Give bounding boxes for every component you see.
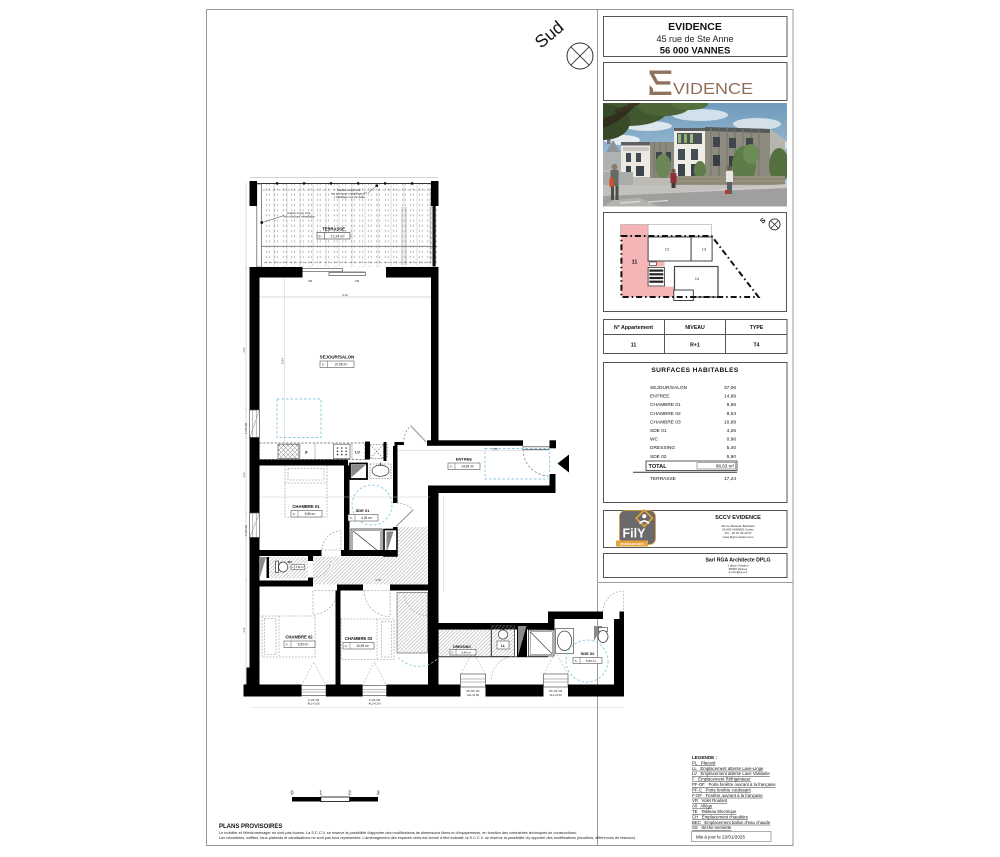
svg-text:11: 11 [632, 260, 638, 266]
svg-text:ALL=0,00: ALL=0,00 [550, 693, 562, 697]
svg-text:9,53 m²: 9,53 m² [298, 643, 309, 647]
svg-text:Les retombées, soffites, faux-: Les retombées, soffites, faux-plafonds e… [219, 836, 636, 840]
svg-text:2,95: 2,95 [242, 347, 246, 353]
svg-text:S :: S : [451, 651, 454, 655]
svg-text:TE Tableau Electrique: TE Tableau Electrique [692, 809, 737, 814]
svg-text:S :: S : [322, 363, 326, 367]
svg-text:1: 1 [319, 791, 322, 797]
svg-text:PL Placard: PL Placard [692, 760, 716, 765]
svg-text:N° Appartement: N° Appartement [614, 325, 653, 331]
svg-text:S :: S : [318, 234, 322, 238]
svg-text:FilY: FilY [623, 527, 647, 541]
svg-text:ALL=0,00: ALL=0,00 [467, 693, 479, 697]
svg-text:VIDENCE: VIDENCE [673, 81, 753, 98]
svg-text:a.ruze@rg-a.fr: a.ruze@rg-a.fr [729, 570, 748, 574]
svg-text:CHAMBRE 03: CHAMBRE 03 [650, 419, 681, 425]
svg-text:+ habillage nez de dalle: + habillage nez de dalle [333, 195, 365, 199]
svg-text:Mis à jour le 22/01/2025: Mis à jour le 22/01/2025 [696, 835, 745, 840]
svg-text:IMMOBILIER NEUF: IMMOBILIER NEUF [620, 542, 644, 546]
svg-text:S :: S : [291, 567, 294, 569]
svg-text:45 rue de Ste Anne: 45 rue de Ste Anne [656, 34, 733, 44]
svg-text:LV Emplacement attente Lave: LV Emplacement attente Lave Vaisselle [692, 771, 770, 776]
svg-text:56 000 VANNES: 56 000 VANNES [660, 46, 731, 57]
svg-text:5,90: 5,90 [727, 454, 737, 460]
svg-text:CHAMBRE 03: CHAMBRE 03 [345, 636, 373, 641]
svg-text:6,10: 6,10 [342, 293, 348, 297]
svg-text:37,06: 37,06 [724, 385, 736, 391]
svg-text:98,63 m²: 98,63 m² [716, 464, 735, 469]
svg-text:PF-C Porte fenêtre coulissan: PF-C Porte fenêtre coulissant [692, 787, 752, 792]
svg-text:14,99: 14,99 [724, 394, 736, 400]
svg-text:ENTREE: ENTREE [456, 457, 473, 462]
svg-text:LV: LV [355, 450, 360, 455]
svg-text:5,90 m²: 5,90 m² [586, 659, 596, 663]
svg-text:LL Emplacement attente Lave-: LL Emplacement attente Lave-Linge [692, 766, 764, 771]
svg-text:12: 12 [665, 247, 670, 252]
svg-text:9,53: 9,53 [727, 411, 737, 417]
svg-text:10,99 m²: 10,99 m² [356, 644, 369, 648]
svg-text:37,06 m²: 37,06 m² [335, 363, 348, 367]
svg-text:2: 2 [348, 791, 351, 797]
svg-text:S :: S : [293, 512, 297, 516]
svg-text:ALL=1,00: ALL=1,00 [368, 702, 380, 706]
svg-text:0,96: 0,96 [727, 437, 737, 443]
svg-text:3: 3 [376, 791, 379, 797]
svg-text:CHAMBRE 01: CHAMBRE 01 [292, 504, 320, 509]
svg-text:13: 13 [702, 247, 707, 252]
svg-text:S :: S : [575, 659, 579, 663]
svg-text:VR Volet Roulant: VR Volet Roulant [692, 798, 728, 803]
svg-text:9,56 m²: 9,56 m² [305, 512, 316, 516]
svg-text:WC: WC [288, 560, 293, 564]
svg-text:SS Sèche-serviette: SS Sèche-serviette [692, 825, 732, 830]
svg-text:17,24 m²: 17,24 m² [330, 234, 345, 238]
svg-text:SDE 01: SDE 01 [650, 428, 667, 434]
svg-text:11: 11 [631, 343, 637, 349]
svg-text:PF-OF Porte fenêtre ouvrant: PF-OF Porte fenêtre ouvrant à la françai… [692, 782, 776, 787]
svg-text:ENTREE: ENTREE [650, 394, 669, 400]
svg-text:Le mobilier et l'électroménage: Le mobilier et l'électroménager ne sont … [219, 831, 577, 835]
svg-text:SURFACES HABITABLES: SURFACES HABITABLES [651, 367, 739, 374]
svg-text:All Allège: All Allège [692, 804, 713, 809]
svg-text:LL: LL [501, 644, 505, 648]
svg-text:R+1: R+1 [690, 343, 700, 349]
svg-text:S :: S : [450, 465, 454, 469]
svg-text:0,96 m²: 0,96 m² [296, 566, 304, 569]
svg-text:0: 0 [290, 791, 293, 797]
svg-text:14: 14 [695, 276, 700, 281]
svg-text:DRESSING: DRESSING [650, 445, 675, 451]
svg-text:ALL=1,00: ALL=1,00 [308, 702, 320, 706]
svg-text:SDE 02: SDE 02 [581, 651, 596, 656]
svg-text:F Emplacement Réfrigérateur: F Emplacement Réfrigérateur [692, 777, 751, 782]
svg-text:LEGENDE :: LEGENDE : [692, 755, 717, 760]
svg-text:SEJOUR/SALON: SEJOUR/SALON [650, 385, 688, 391]
svg-text:4,26: 4,26 [727, 428, 737, 434]
svg-text:TERRASSE: TERRASSE [650, 476, 676, 482]
svg-text:PLANS PROVISOIRES: PLANS PROVISOIRES [219, 824, 282, 830]
svg-text:BEC Emplacement ballon d'eau: BEC Emplacement ballon d'eau chaude [692, 820, 771, 825]
svg-text:SCCV EVIDENCE: SCCV EVIDENCE [715, 515, 761, 521]
svg-text:SDE 01: SDE 01 [356, 508, 371, 513]
svg-text:S :: S : [345, 644, 349, 648]
svg-text:DRESSING: DRESSING [453, 645, 471, 649]
svg-text:4,78: 4,78 [375, 578, 381, 582]
svg-text:EVIDENCE: EVIDENCE [668, 21, 722, 33]
svg-text:5,66: 5,66 [492, 447, 498, 451]
svg-text:NIVEAU: NIVEAU [685, 325, 705, 331]
svg-text:10,99: 10,99 [724, 419, 736, 425]
svg-text:5,64: 5,64 [281, 358, 285, 364]
svg-text:WC: WC [650, 437, 659, 443]
svg-text:T4: T4 [753, 343, 759, 349]
svg-text:www.filypromotion.com: www.filypromotion.com [723, 535, 754, 539]
svg-text:5,40 m²: 5,40 m² [461, 651, 471, 655]
svg-text:CHAMBRE 02: CHAMBRE 02 [650, 411, 681, 417]
svg-text:CHAMBRE 01: CHAMBRE 01 [650, 402, 681, 408]
svg-text:S :: S : [286, 643, 290, 647]
svg-text:14,99 m²: 14,99 m² [461, 465, 474, 469]
svg-text:3,25: 3,25 [242, 627, 246, 633]
svg-text:CHAMBRE 02: CHAMBRE 02 [285, 635, 313, 640]
svg-text:F-OF VR: F-OF VR [244, 525, 248, 536]
svg-text:TOTAL: TOTAL [649, 464, 668, 470]
svg-text:9,56: 9,56 [727, 402, 737, 408]
svg-text:2,45: 2,45 [242, 472, 246, 478]
svg-text:4,26 m²: 4,26 m² [361, 516, 372, 520]
svg-text:F-OF Fenêtre ouvrant à la fr: F-OF Fenêtre ouvrant à la française [692, 793, 763, 798]
svg-text:sur structure métallique: sur structure métallique [283, 214, 315, 218]
svg-text:F: F [305, 450, 308, 455]
svg-text:5,40: 5,40 [727, 445, 737, 451]
svg-text:TERRASSE: TERRASSE [322, 227, 345, 232]
svg-text:CH Emplacement chaudière: CH Emplacement chaudière [692, 814, 749, 819]
svg-text:S :: S : [350, 516, 354, 520]
svg-text:SEJOUR/SALON: SEJOUR/SALON [320, 355, 355, 360]
svg-text:17,24: 17,24 [724, 476, 736, 482]
svg-text:SDE 02: SDE 02 [650, 454, 667, 460]
svg-text:TYPE: TYPE [750, 325, 764, 331]
svg-text:F-OF VR: F-OF VR [244, 423, 248, 434]
